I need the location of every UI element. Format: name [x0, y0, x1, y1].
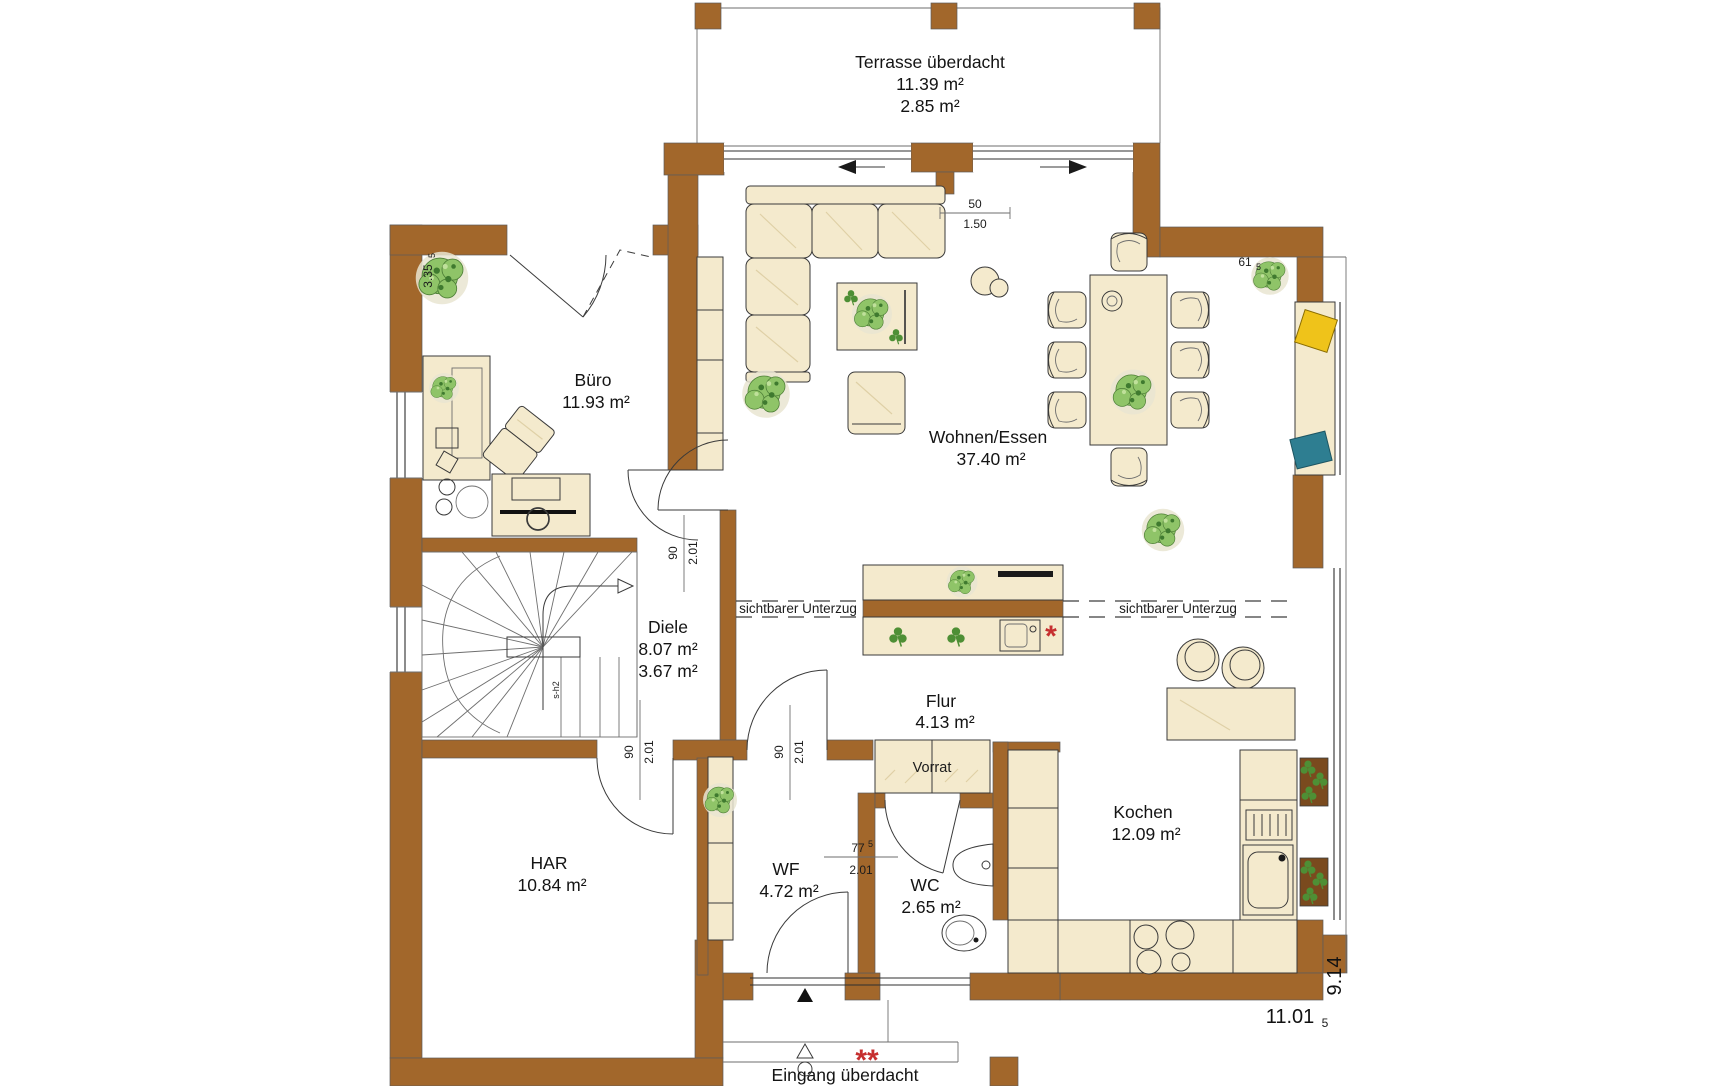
wall-flur-south-east	[827, 740, 873, 760]
room-labels: Büro 11.93 m² Wohnen/Essen 37.40 m² Diel…	[517, 370, 1180, 917]
svg-text:3.35: 3.35	[421, 264, 435, 288]
wall-south-entry-pier	[723, 973, 753, 1000]
svg-text:50: 50	[968, 197, 982, 211]
diele-label: Diele	[648, 617, 688, 637]
vorrat-closet: Vorrat	[875, 740, 990, 793]
bay-window-seat	[1290, 302, 1338, 475]
wall-south-har	[390, 1058, 723, 1086]
bar-area	[1167, 639, 1295, 740]
bar-stool	[1177, 639, 1219, 681]
side-table	[971, 267, 1008, 297]
dim-door-diele: 90 2.01	[666, 515, 700, 592]
dim-door-wf: 90 2.01	[772, 705, 806, 800]
svg-text:90: 90	[772, 745, 786, 759]
wf-cabinets	[703, 757, 737, 940]
svg-text:9.14: 9.14	[1324, 957, 1346, 996]
svg-text:2.01: 2.01	[642, 740, 656, 764]
dim-dining-offset: 61 5	[1238, 255, 1261, 272]
wall-buero-south	[422, 538, 637, 552]
bar-stool	[1222, 647, 1264, 689]
entrance-label: Eingang überdacht	[772, 1065, 919, 1085]
wall-diele-east	[720, 510, 736, 740]
herb-box	[1300, 758, 1328, 806]
desk	[436, 474, 590, 536]
sliding-window-right	[973, 143, 1133, 174]
buero-label: Büro	[575, 370, 612, 390]
table-plant	[1111, 370, 1156, 415]
dim-sofa-gap: 50 1.50	[940, 197, 1010, 231]
wall-wc-east	[993, 742, 1008, 920]
ottoman	[848, 372, 905, 434]
dim-building-depth: 9.14	[1324, 957, 1346, 996]
herb-box	[1300, 858, 1328, 906]
wall-terrace-sw-pillar	[664, 143, 724, 175]
dim-buero-wall: 3.35 5	[421, 253, 437, 288]
wall-buero-east	[668, 175, 698, 470]
kitchen-tall-cabinets	[1008, 750, 1058, 973]
terrace: Terrasse überdacht 11.39 m² 2.85 m²	[695, 3, 1160, 143]
terrace-pillar	[1134, 3, 1160, 29]
wall-wc-north-east	[960, 793, 993, 808]
stair-curve	[443, 556, 500, 733]
kochen-label: Kochen	[1113, 802, 1172, 822]
svg-text:2.01: 2.01	[686, 541, 700, 565]
svg-text:5: 5	[868, 839, 873, 849]
floor-plan-page: Terrasse überdacht 11.39 m² 2.85 m²	[0, 0, 1720, 1086]
vorrat-label: Vorrat	[913, 760, 952, 776]
window-buero-west	[388, 392, 424, 478]
wall-east-jog	[1160, 227, 1323, 257]
step-arrow-icon	[797, 1044, 813, 1058]
coffee-table	[837, 283, 917, 350]
wohnen-area: 37.40 m²	[956, 449, 1025, 469]
entrance-porch: ** Eingang überdacht	[723, 1000, 958, 1085]
svg-text:2.01: 2.01	[792, 740, 806, 764]
wf-label: WF	[772, 859, 799, 879]
terrace-area: 11.39 m²	[896, 74, 964, 94]
door-buero-north	[510, 250, 651, 317]
terrace-label: Terrasse überdacht	[855, 52, 1005, 72]
wc-label: WC	[910, 875, 939, 895]
dim-door-har: 90 2.01	[622, 700, 656, 800]
stair-treads	[422, 552, 637, 737]
door-wc	[885, 800, 960, 873]
wall-har-north	[422, 740, 597, 758]
wall-east-pier-mid	[1293, 475, 1323, 568]
toilet	[942, 915, 986, 951]
flur-label: Flur	[926, 691, 956, 711]
dining-set	[1048, 233, 1209, 486]
har-area: 10.84 m²	[517, 875, 586, 895]
sliding-window-left	[724, 143, 911, 174]
terrace-area2: 2.85 m²	[900, 96, 959, 116]
svg-text:5: 5	[1322, 1016, 1329, 1030]
svg-text:2.01: 2.01	[849, 863, 873, 877]
daybed	[423, 356, 490, 480]
wall-east-pier-top	[1297, 257, 1323, 302]
door-buero-diele	[628, 470, 698, 540]
wall-island-half-wall	[863, 600, 1063, 617]
washbasin	[953, 844, 993, 886]
beam-label-left: sichtbarer Unterzug	[739, 601, 857, 616]
wf-area: 4.72 m²	[759, 881, 818, 901]
svg-text:11.01: 11.01	[1266, 1006, 1315, 1028]
svg-text:61: 61	[1238, 255, 1252, 269]
wall-east-pier-bottom	[1297, 920, 1323, 973]
bar-counter	[1167, 688, 1295, 740]
entrance-arrow-icon	[797, 988, 813, 1002]
wc-area: 2.65 m²	[901, 897, 960, 917]
beam-label-right: sichtbarer Unterzug	[1119, 601, 1237, 616]
har-label: HAR	[531, 853, 568, 873]
stair-direction-arrow-icon	[618, 579, 633, 593]
kochen-area: 12.09 m²	[1111, 824, 1180, 844]
svg-text:s-h2: s-h2	[551, 681, 561, 699]
floor-plant	[742, 370, 790, 418]
wall-buero-north-west	[390, 225, 507, 255]
beam-plant	[1142, 509, 1185, 552]
stair-note: s-h2	[551, 681, 561, 699]
buero-area: 11.93 m²	[562, 392, 630, 412]
wall-south-kitchen	[1060, 973, 1323, 1000]
island-note-mark: *	[1045, 620, 1057, 653]
diele-area: 8.07 m²	[638, 639, 697, 659]
svg-text:5: 5	[1256, 262, 1261, 272]
dim-building-width: 11.01 5	[1266, 1006, 1329, 1030]
svg-text:77: 77	[851, 841, 865, 855]
terrace-pillar	[931, 3, 957, 29]
stairs: s-h2	[422, 552, 637, 737]
wall-wc-north-west	[875, 793, 885, 808]
window-diele-west	[388, 607, 424, 672]
lounge-chair	[482, 405, 556, 483]
floor-plan-drawing: Terrasse überdacht 11.39 m² 2.85 m²	[0, 0, 1720, 1086]
svg-text:90: 90	[622, 745, 636, 759]
wohnen-label: Wohnen/Essen	[929, 427, 1047, 447]
wall-south-wc	[970, 973, 1060, 1000]
door-wf-flur	[747, 670, 827, 750]
terrace-pillar	[695, 3, 721, 29]
wall-wf-wc-divider	[858, 793, 875, 973]
diele-area2: 3.67 m²	[638, 661, 697, 681]
door-har	[597, 758, 673, 834]
flur-area: 4.13 m²	[915, 712, 974, 732]
wall-south-pier	[845, 973, 880, 1000]
svg-text:5: 5	[427, 253, 437, 258]
kitchen-cabinets	[1008, 750, 1328, 974]
svg-text:1.50: 1.50	[963, 217, 987, 231]
buero-furniture	[423, 356, 590, 536]
porch-pillar	[990, 1057, 1018, 1086]
svg-text:90: 90	[666, 546, 680, 560]
wall-terrace-mid-pillar	[911, 143, 973, 172]
living-wardrobe	[697, 257, 723, 470]
